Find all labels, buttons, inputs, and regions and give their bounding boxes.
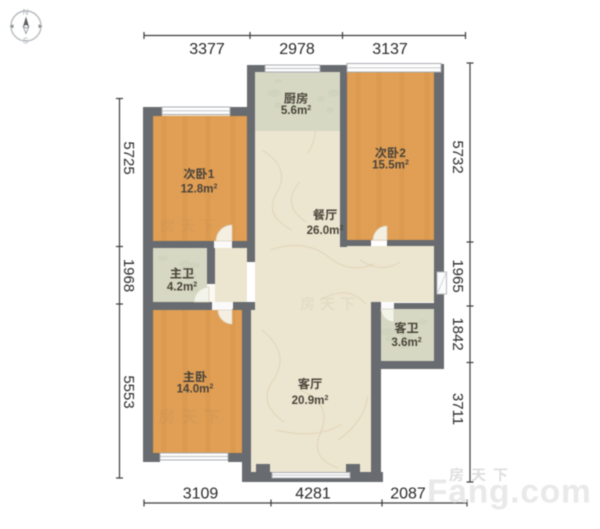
svg-text:2978: 2978: [279, 41, 315, 58]
svg-text:1842: 1842: [449, 317, 466, 350]
svg-text:3377: 3377: [189, 41, 225, 58]
svg-text:1965: 1965: [449, 259, 466, 292]
svg-text:3711: 3711: [449, 393, 466, 425]
svg-text:5553: 5553: [120, 375, 137, 408]
svg-text:3137: 3137: [372, 41, 408, 58]
svg-text:S: S: [23, 37, 28, 46]
svg-text:26.0m2: 26.0m2: [307, 224, 344, 237]
svg-text:1: 1: [208, 167, 215, 181]
svg-text:3109: 3109: [183, 486, 219, 503]
svg-text:14.0m2: 14.0m2: [177, 383, 214, 396]
svg-text:5.6m2: 5.6m2: [281, 104, 311, 117]
svg-text:20.9m2: 20.9m2: [292, 394, 329, 407]
svg-text:4.2m2: 4.2m2: [167, 281, 197, 294]
svg-text:1968: 1968: [120, 259, 137, 292]
svg-text:4281: 4281: [295, 486, 331, 503]
svg-text:2087: 2087: [390, 486, 426, 503]
svg-text:5732: 5732: [449, 140, 466, 173]
svg-text:3.6m2: 3.6m2: [391, 336, 421, 349]
svg-text:15.5m2: 15.5m2: [372, 158, 409, 171]
svg-text:5725: 5725: [120, 141, 137, 174]
svg-text:N: N: [23, 8, 29, 17]
svg-text:12.8m2: 12.8m2: [181, 183, 218, 196]
